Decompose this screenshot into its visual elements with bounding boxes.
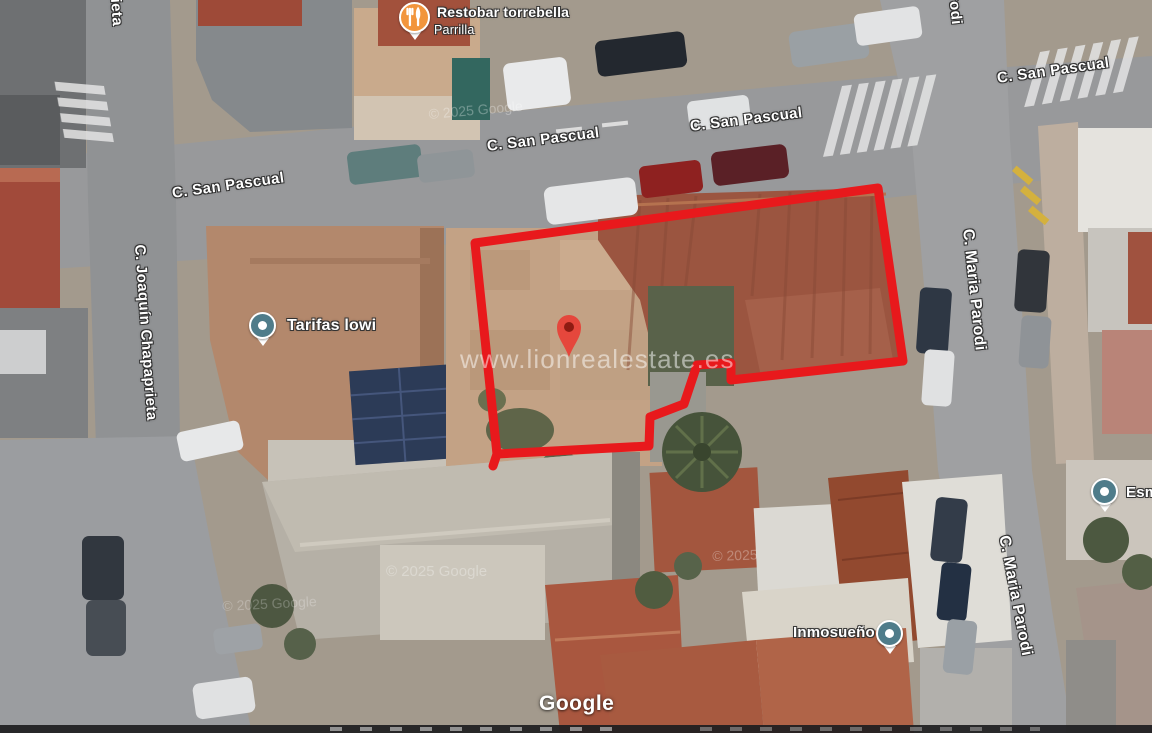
poi-label-restobar[interactable]: Restobar torrebella — [437, 4, 569, 20]
restaurant-icon — [401, 4, 427, 30]
pin-tail — [884, 646, 896, 654]
poi-label-inmosueno[interactable]: Inmosueño — [793, 624, 875, 641]
tile-credit: © 2025 — [712, 546, 758, 564]
map-canvas[interactable]: © 2025 Google © 2025 Google © 2025 © 202… — [0, 0, 1152, 733]
attribution-text-blur — [700, 727, 1040, 731]
pin-tail — [409, 32, 421, 40]
place-icon — [258, 321, 267, 330]
street-label-partial-parodi: rodi — [945, 0, 965, 26]
poi-sublabel-restobar: Parrilla — [434, 23, 475, 37]
place-pin[interactable] — [1091, 478, 1118, 505]
place-icon — [1100, 487, 1109, 496]
street-label-partial-chapaprieta: ieta — [107, 0, 126, 27]
poi-label-tarifas-lowi[interactable]: Tarifas lowi — [287, 317, 376, 335]
restaurant-pin[interactable] — [399, 2, 430, 33]
attribution-bar — [0, 725, 1152, 733]
pin-tail — [1099, 504, 1111, 512]
place-icon — [885, 629, 894, 638]
poi-label-esm[interactable]: Esm — [1126, 484, 1152, 501]
tile-credit: © 2025 Google — [386, 563, 487, 580]
attribution-text-blur — [330, 727, 630, 731]
google-logo: Google — [539, 692, 614, 716]
pin-tail — [257, 338, 269, 346]
place-pin[interactable] — [249, 312, 276, 339]
realestate-watermark: www.lionrealestate.es — [460, 344, 735, 375]
place-pin[interactable] — [876, 620, 903, 647]
